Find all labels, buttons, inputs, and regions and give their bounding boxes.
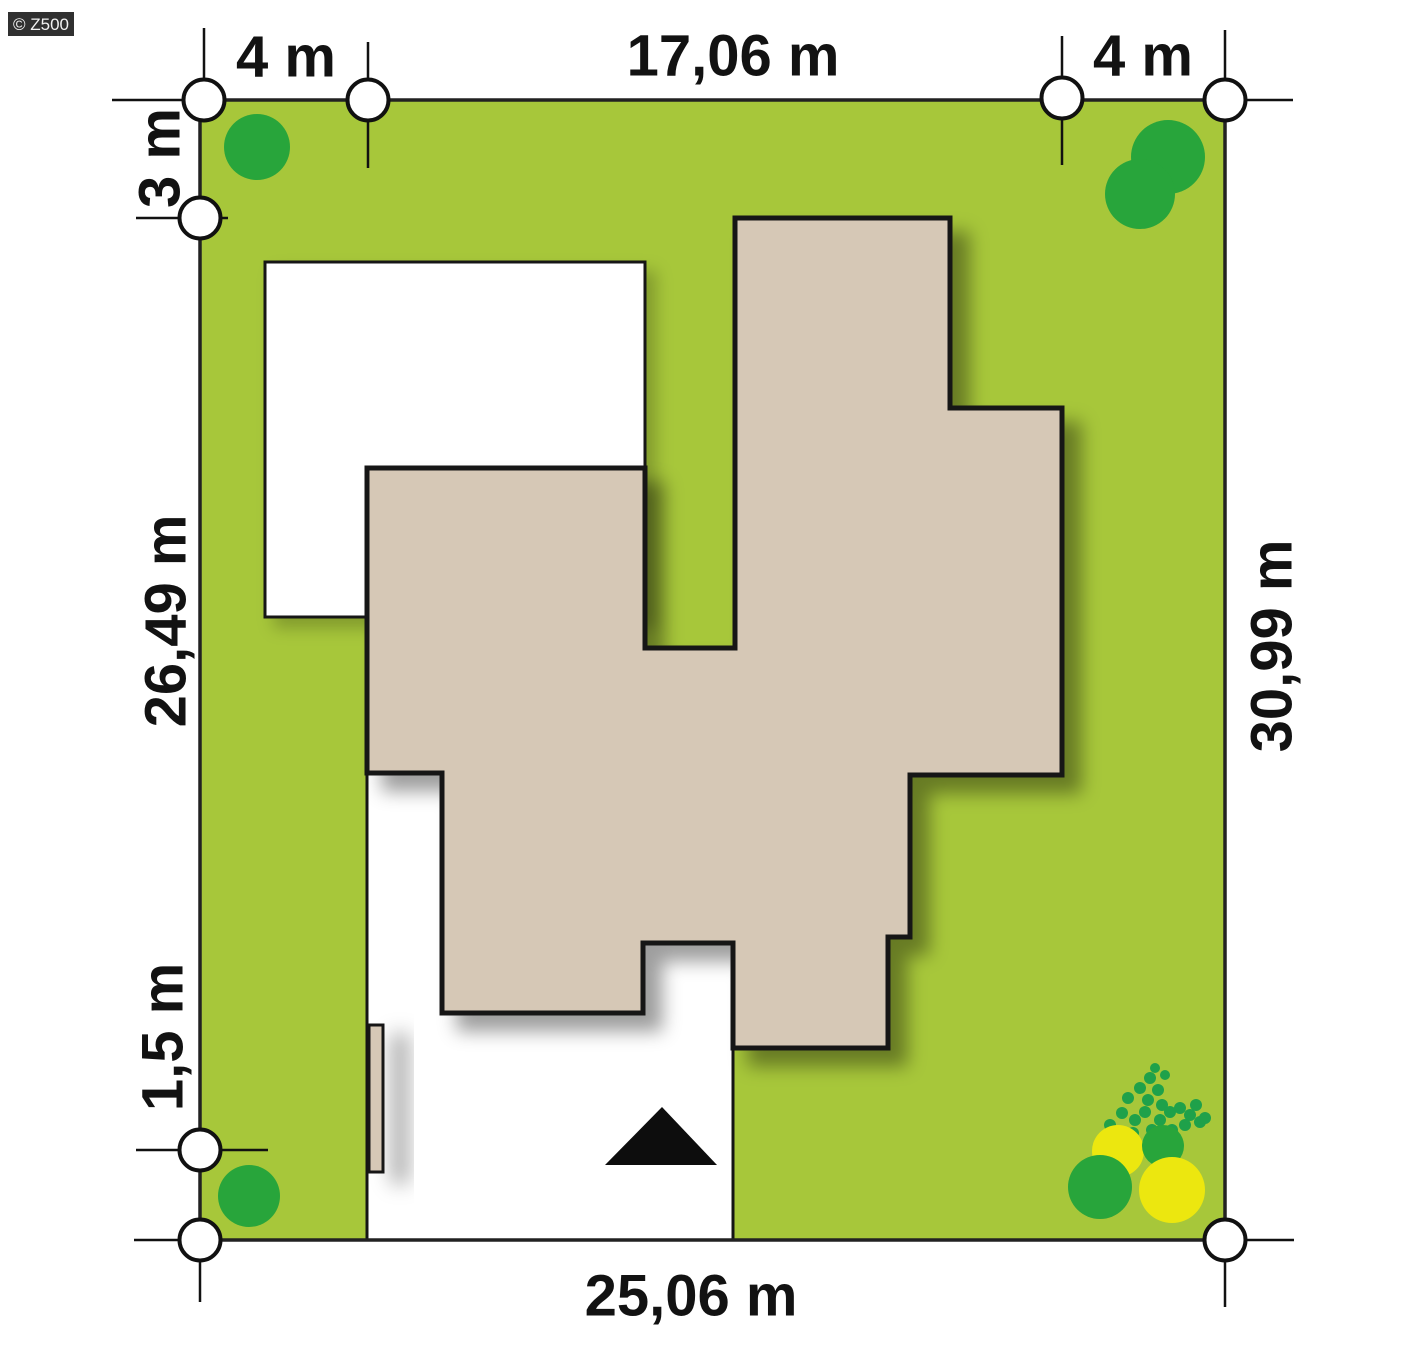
watermark-label: © Z500: [13, 15, 69, 34]
bush-green: [1068, 1155, 1132, 1219]
dim-label-left-bottom-setback: 1,5 m: [131, 963, 196, 1111]
gate-marker: [369, 1025, 383, 1172]
dimension-marker: [180, 1130, 221, 1171]
tree-bottom-left: [218, 1165, 280, 1227]
tree-crown: [224, 114, 290, 180]
dim-label-bottom-width: 25,06 m: [585, 1264, 798, 1329]
dimension-marker: [180, 1220, 221, 1261]
dim-label-left-top-setback: 3 m: [128, 108, 193, 208]
dim-label-top-right-setback: 4 m: [1093, 24, 1193, 89]
dimension-marker: [1205, 1220, 1246, 1261]
dimension-marker: [1205, 80, 1246, 121]
bush-yellow: [1139, 1157, 1205, 1223]
dimension-marker: [1042, 78, 1083, 119]
dim-label-top-house-width: 17,06 m: [627, 24, 840, 89]
watermark: © Z500: [8, 12, 74, 36]
tree-crown: [218, 1165, 280, 1227]
tree-crown: [1105, 159, 1175, 229]
dim-label-left-depth: 26,49 m: [134, 515, 199, 728]
site-plan-drawing: 4 m 17,06 m 4 m 3 m 26,49 m 1,5 m 30,99 …: [0, 0, 1403, 1350]
site-plan: 4 m 17,06 m 4 m 3 m 26,49 m 1,5 m 30,99 …: [0, 0, 1403, 1350]
tree-top-left: [224, 114, 290, 180]
dim-label-right-depth: 30,99 m: [1240, 540, 1305, 753]
dim-label-top-left-setback: 4 m: [236, 25, 336, 90]
dimension-marker: [348, 80, 389, 121]
